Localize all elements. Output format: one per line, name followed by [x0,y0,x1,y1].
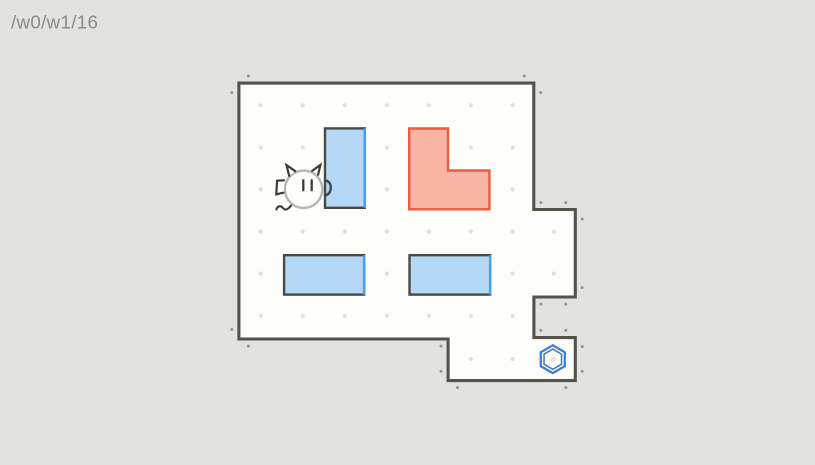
svg-text:/w0/w1/16: /w0/w1/16 [11,12,98,33]
